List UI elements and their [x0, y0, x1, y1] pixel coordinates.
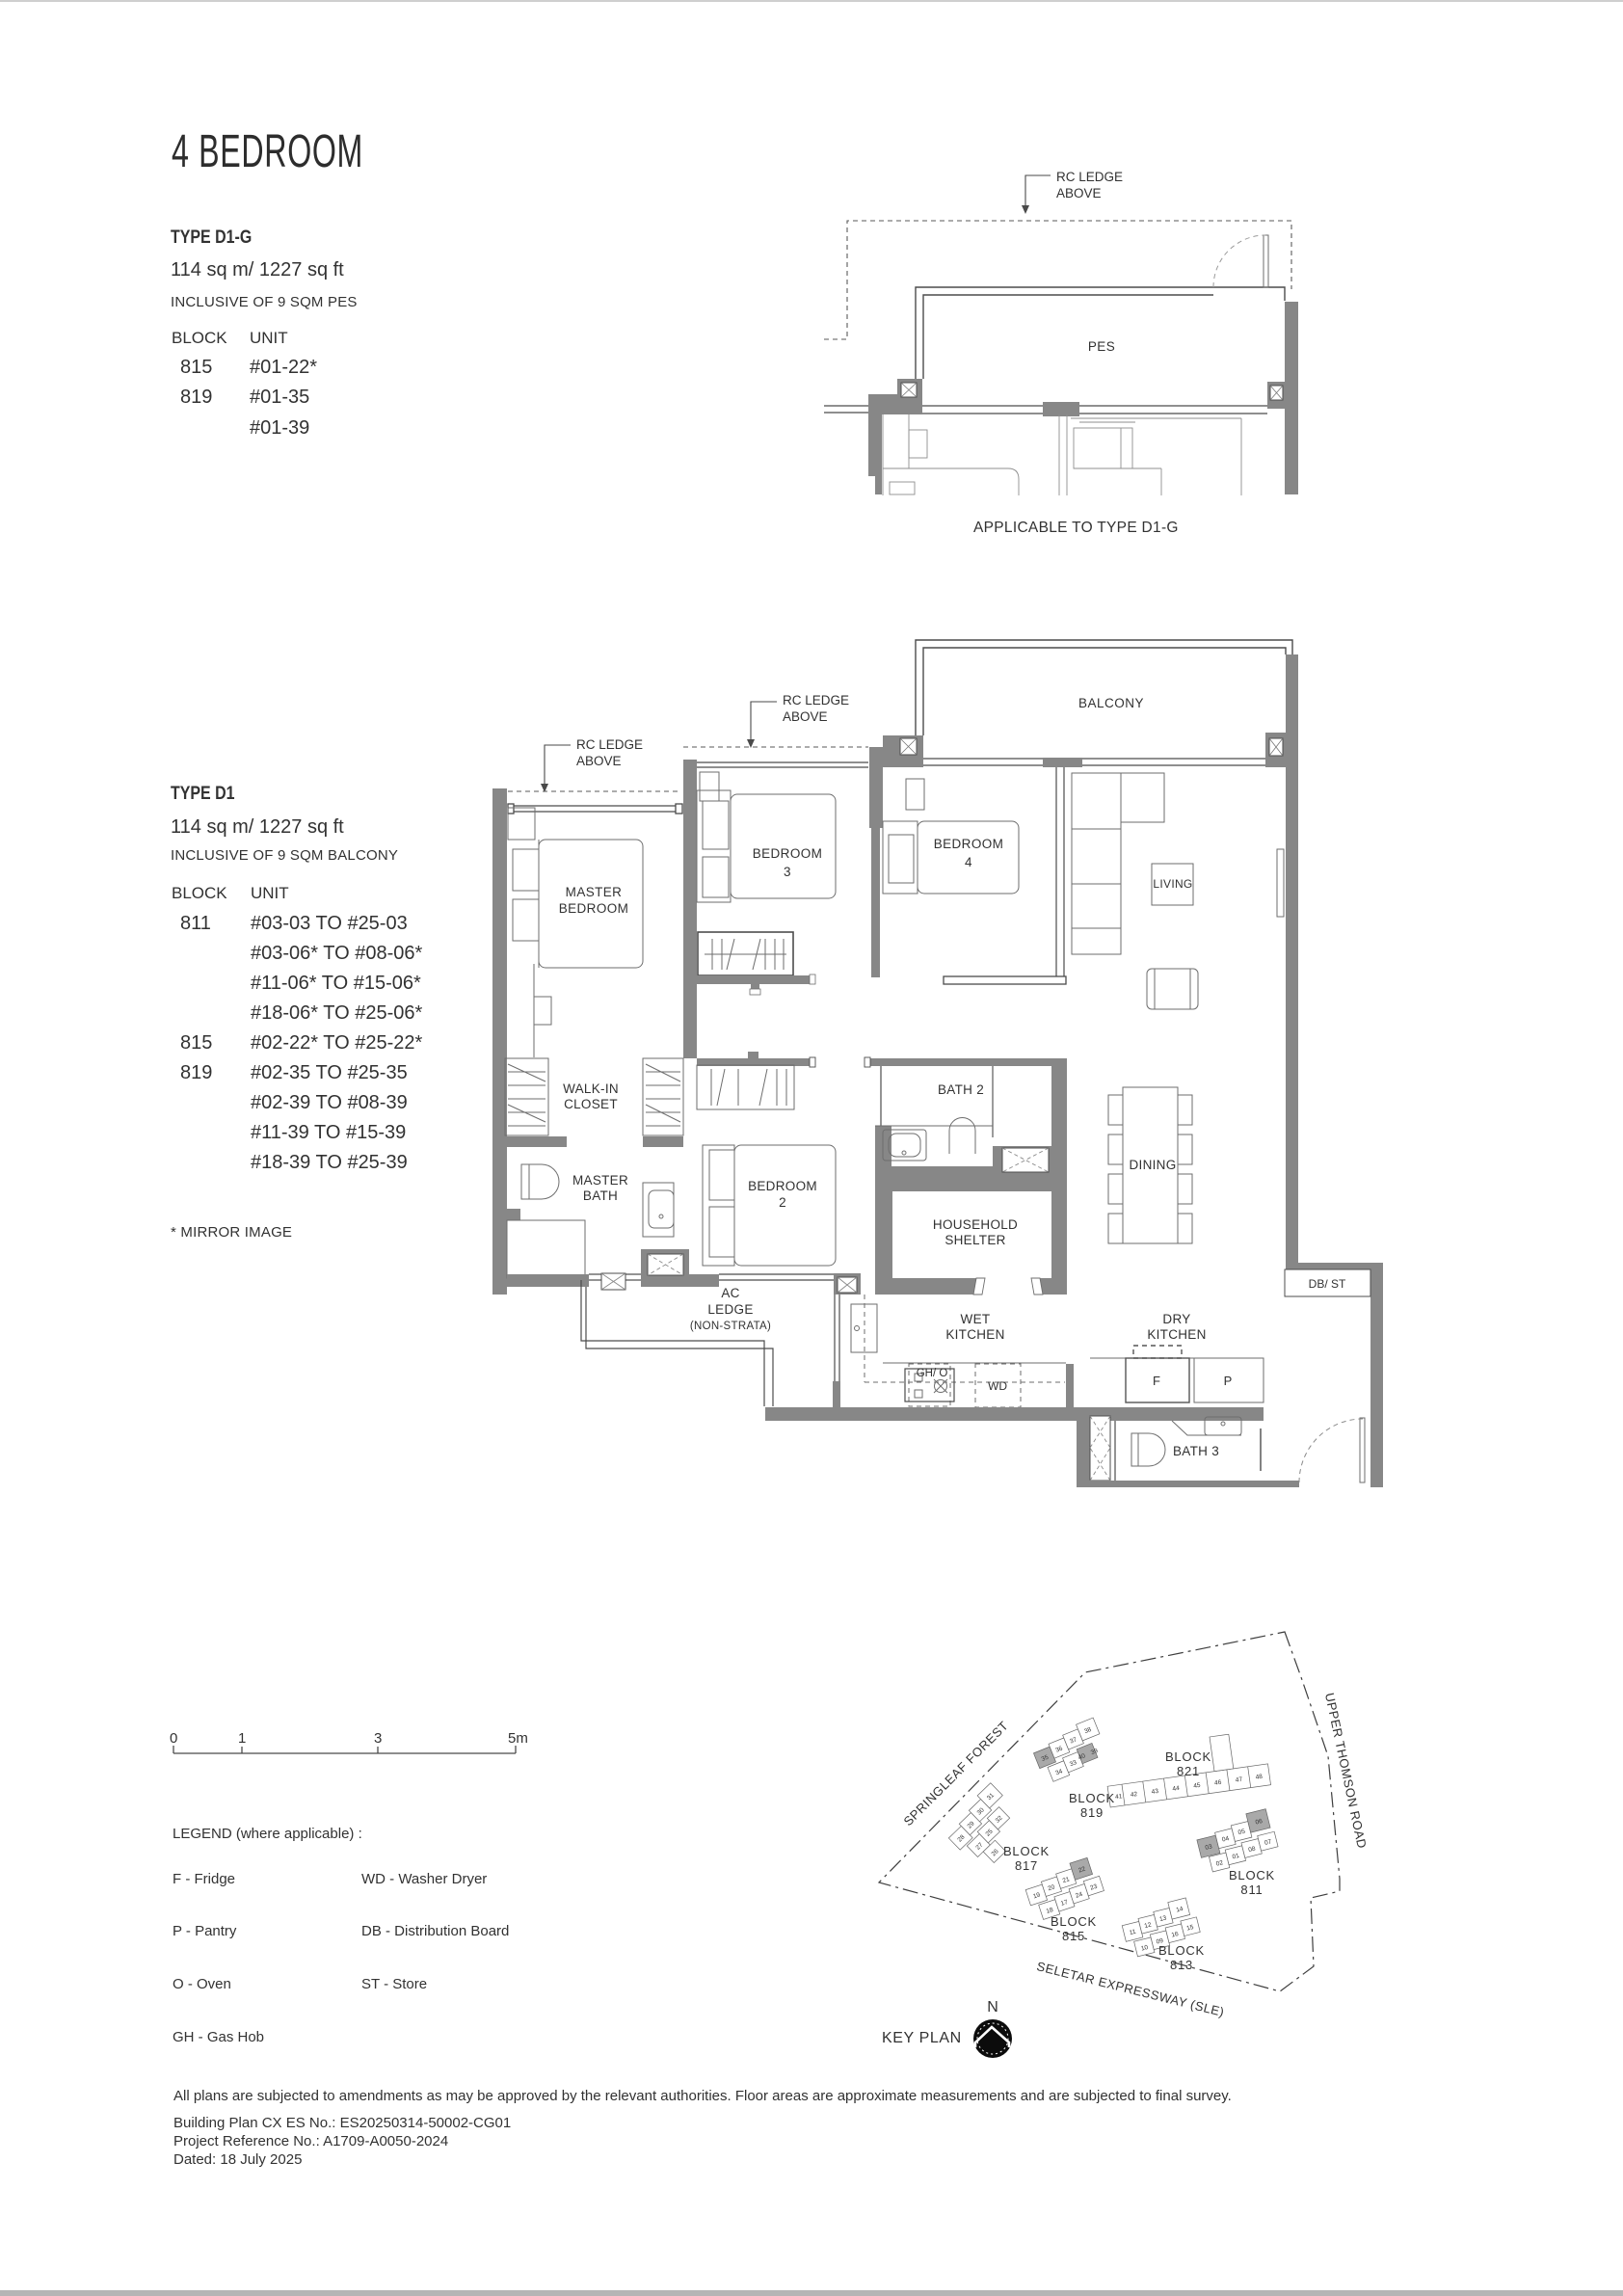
- svg-text:0: 0: [170, 1730, 177, 1747]
- svg-text:817: 817: [1015, 1858, 1038, 1873]
- svg-text:43: 43: [1151, 1788, 1159, 1796]
- svg-text:F: F: [1153, 1374, 1160, 1388]
- svg-text:47: 47: [1235, 1776, 1243, 1784]
- svg-text:KEY PLAN: KEY PLAN: [882, 2030, 962, 2046]
- svg-text:LIVING: LIVING: [1153, 877, 1192, 891]
- svg-text:821: 821: [1177, 1764, 1200, 1778]
- svg-text:815: 815: [1062, 1929, 1085, 1943]
- svg-text:BLOCK: BLOCK: [1069, 1791, 1115, 1805]
- svg-text:1: 1: [238, 1730, 246, 1747]
- svg-text:813: 813: [1170, 1958, 1193, 1972]
- svg-text:41: 41: [1115, 1793, 1124, 1801]
- svg-text:2: 2: [779, 1195, 786, 1210]
- svg-text:(NON-STRATA): (NON-STRATA): [690, 1321, 771, 1332]
- svg-text:ABOVE: ABOVE: [1056, 186, 1102, 200]
- svg-text:DINING: DINING: [1129, 1158, 1176, 1172]
- svg-text:819: 819: [1080, 1805, 1104, 1820]
- svg-text:RC LEDGE: RC LEDGE: [1056, 170, 1123, 184]
- svg-text:HOUSEHOLD: HOUSEHOLD: [933, 1217, 1018, 1232]
- svg-text:ABOVE: ABOVE: [576, 754, 622, 768]
- svg-text:BLOCK: BLOCK: [1003, 1844, 1050, 1858]
- svg-text:BLOCK: BLOCK: [1158, 1943, 1205, 1958]
- svg-text:RC LEDGE: RC LEDGE: [783, 693, 849, 707]
- svg-text:BLOCK: BLOCK: [1051, 1914, 1097, 1929]
- svg-text:N: N: [987, 1999, 998, 2016]
- svg-text:3: 3: [784, 865, 791, 879]
- svg-text:BLOCK: BLOCK: [1165, 1749, 1211, 1764]
- svg-text:DRY: DRY: [1162, 1312, 1190, 1326]
- svg-text:P: P: [1224, 1374, 1233, 1388]
- svg-text:BATH 2: BATH 2: [938, 1082, 984, 1097]
- svg-text:KITCHEN: KITCHEN: [1147, 1327, 1206, 1342]
- svg-text:3: 3: [374, 1730, 382, 1747]
- svg-text:MASTER: MASTER: [572, 1173, 628, 1188]
- svg-text:BEDROOM: BEDROOM: [559, 901, 629, 916]
- svg-text:44: 44: [1172, 1785, 1181, 1793]
- svg-text:BEDROOM: BEDROOM: [934, 837, 1004, 851]
- svg-text:SELETAR EXPRESSWAY (SLE): SELETAR EXPRESSWAY (SLE): [1035, 1959, 1226, 2019]
- svg-text:48: 48: [1255, 1774, 1264, 1781]
- svg-text:PES: PES: [1088, 339, 1115, 354]
- svg-text:WD: WD: [988, 1379, 1007, 1393]
- svg-text:5m: 5m: [508, 1730, 528, 1747]
- svg-text:GH/ O: GH/ O: [917, 1368, 948, 1379]
- svg-text:AC: AC: [721, 1286, 739, 1300]
- svg-text:811: 811: [1240, 1882, 1263, 1897]
- svg-text:MASTER: MASTER: [566, 885, 623, 899]
- svg-text:BEDROOM: BEDROOM: [748, 1179, 817, 1193]
- svg-text:DB/ ST: DB/ ST: [1309, 1277, 1346, 1291]
- svg-text:BLOCK: BLOCK: [1229, 1868, 1275, 1882]
- svg-text:BATH 3: BATH 3: [1173, 1444, 1219, 1458]
- svg-text:ABOVE: ABOVE: [783, 709, 828, 724]
- svg-text:BEDROOM: BEDROOM: [753, 846, 823, 861]
- svg-text:WET: WET: [961, 1312, 991, 1326]
- svg-text:46: 46: [1214, 1779, 1223, 1787]
- svg-text:KITCHEN: KITCHEN: [945, 1327, 1004, 1342]
- svg-text:CLOSET: CLOSET: [564, 1097, 618, 1111]
- svg-text:SHELTER: SHELTER: [945, 1233, 1005, 1247]
- svg-text:LEDGE: LEDGE: [707, 1302, 753, 1317]
- svg-text:45: 45: [1193, 1782, 1202, 1790]
- svg-text:39: 39: [1090, 1748, 1100, 1756]
- svg-text:BALCONY: BALCONY: [1078, 696, 1144, 710]
- svg-text:42: 42: [1131, 1791, 1139, 1799]
- svg-text:WALK-IN: WALK-IN: [563, 1081, 619, 1096]
- svg-text:RC LEDGE: RC LEDGE: [576, 737, 643, 752]
- svg-text:4: 4: [965, 855, 972, 869]
- svg-text:BATH: BATH: [583, 1188, 618, 1203]
